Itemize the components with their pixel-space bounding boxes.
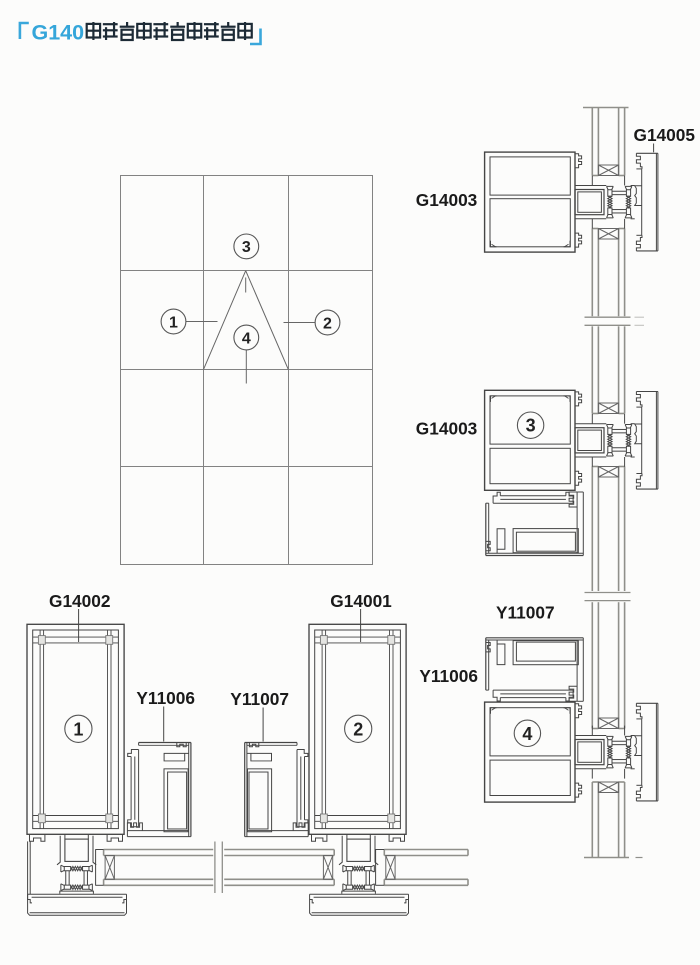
svg-text:3: 3 <box>526 416 536 436</box>
svg-text:G14001: G14001 <box>330 591 392 611</box>
svg-text:2: 2 <box>323 315 332 332</box>
svg-text:Y11007: Y11007 <box>496 603 555 623</box>
svg-text:1: 1 <box>73 719 83 739</box>
svg-text:G14003: G14003 <box>416 419 478 439</box>
svg-text:4: 4 <box>242 330 251 347</box>
svg-text:G14003: G14003 <box>416 190 478 210</box>
svg-text:3: 3 <box>242 239 251 256</box>
svg-text:G14002: G14002 <box>49 591 111 611</box>
svg-text:4: 4 <box>522 724 532 744</box>
svg-text:2: 2 <box>353 719 363 739</box>
svg-text:Y11006: Y11006 <box>136 688 195 708</box>
svg-text:Y11006: Y11006 <box>419 666 478 686</box>
svg-text:Y11007: Y11007 <box>230 689 289 709</box>
svg-text:G140: G140 <box>32 21 85 45</box>
svg-text:1: 1 <box>169 314 178 331</box>
svg-text:G14005: G14005 <box>634 125 696 145</box>
